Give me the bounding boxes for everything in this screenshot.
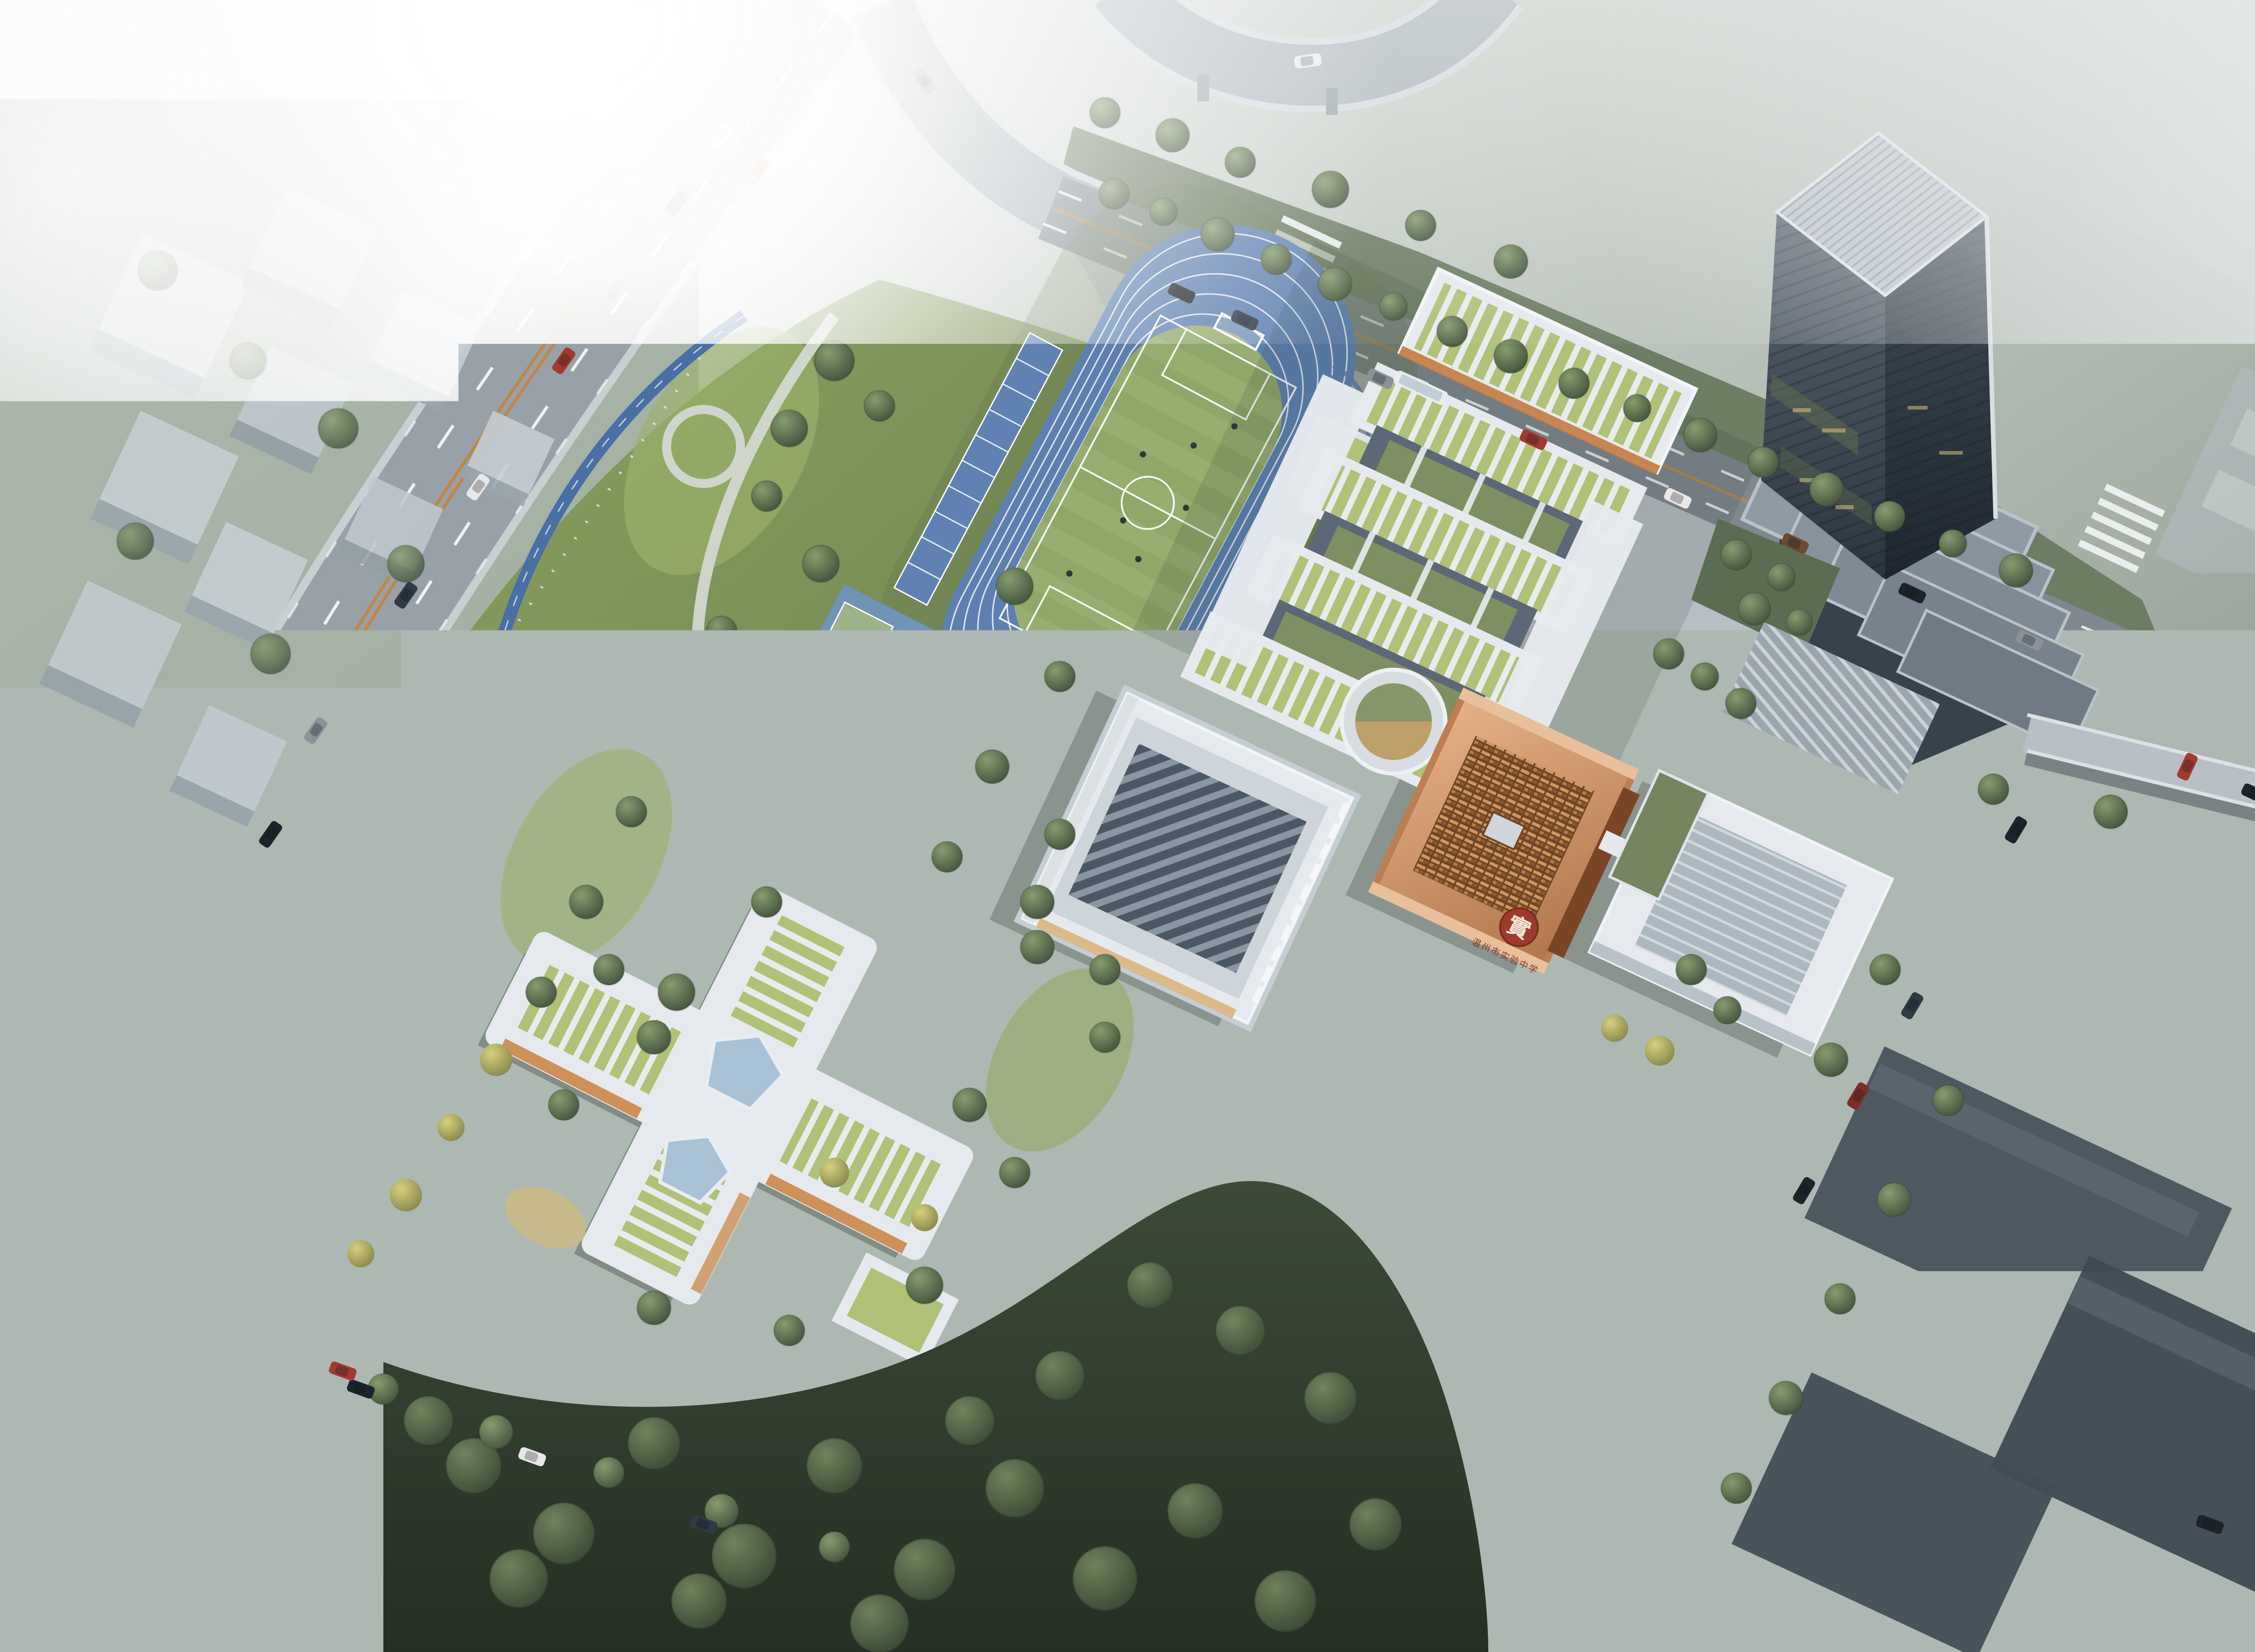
aerial-render: 實 温州市实验中学	[0, 0, 2255, 1652]
sun-glare	[0, 0, 2255, 1652]
